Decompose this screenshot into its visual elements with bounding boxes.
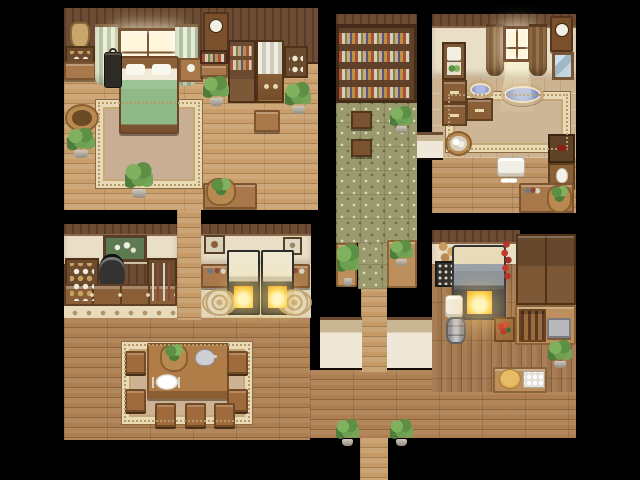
south-wall-left	[320, 317, 362, 370]
lantern	[104, 52, 122, 88]
library-stool-1	[351, 111, 372, 129]
towel-shelf	[442, 42, 466, 80]
bath-window	[503, 26, 531, 62]
kitchen-towel-stack	[445, 295, 463, 318]
linen-cabinet	[256, 40, 284, 103]
dining-carpet	[122, 342, 252, 424]
bedroom-plant-2	[285, 82, 311, 114]
library-plant-1	[390, 106, 413, 133]
veggie-crate	[494, 317, 515, 342]
egg-tray	[523, 371, 545, 388]
exit-plant-left	[336, 419, 359, 446]
grinder	[547, 318, 571, 338]
kitchen-cupboards	[516, 234, 576, 305]
exit-plant-right	[390, 419, 413, 446]
pepper-strings	[499, 239, 514, 283]
kitchen-plant	[548, 340, 572, 368]
milk-barrel	[446, 317, 466, 344]
bath-wall-clock	[550, 16, 573, 52]
center-walkway-floor	[361, 287, 387, 372]
bedroom-side-table	[64, 62, 96, 80]
library-bookshelf-wall	[336, 25, 417, 103]
bedroom-bookshelf	[228, 40, 256, 103]
library-plant-tall	[337, 242, 359, 286]
bedroom-wall-clock	[203, 12, 229, 52]
library-bath-wall	[417, 132, 443, 160]
apothecary-tile-strip	[64, 304, 177, 318]
exit-corridor-floor	[360, 438, 388, 480]
bedroom-plant-4	[125, 162, 153, 198]
library-plant-2	[390, 240, 413, 266]
greens-basket	[206, 178, 236, 206]
bath-curtain-left	[486, 24, 504, 76]
bread-loaf	[499, 369, 521, 389]
oven-table-left-bottles	[204, 264, 228, 276]
library-floor-strip	[358, 243, 387, 289]
bedroom-plant-3	[67, 128, 95, 158]
bottle-crate	[519, 309, 546, 342]
mid-corridor-floor	[177, 208, 201, 320]
towel-pile	[497, 157, 525, 177]
library-stool-2	[351, 139, 372, 157]
floor-medallion-1	[202, 289, 237, 316]
bird-painting	[204, 235, 225, 254]
bath-mirror	[552, 52, 574, 80]
bedroom-desk	[254, 110, 280, 132]
bath-bottles	[523, 183, 541, 196]
bedroom-books-row	[200, 50, 228, 64]
bath-plant-basket	[547, 185, 572, 213]
game-viewport[interactable]	[0, 0, 640, 480]
dish-shelf	[284, 46, 308, 78]
slippers	[501, 176, 517, 185]
bath-curtain-right	[529, 24, 547, 76]
apothecary-cabinets	[64, 284, 177, 306]
south-wall-right	[387, 317, 438, 370]
bedroom-plant-1	[203, 76, 229, 106]
